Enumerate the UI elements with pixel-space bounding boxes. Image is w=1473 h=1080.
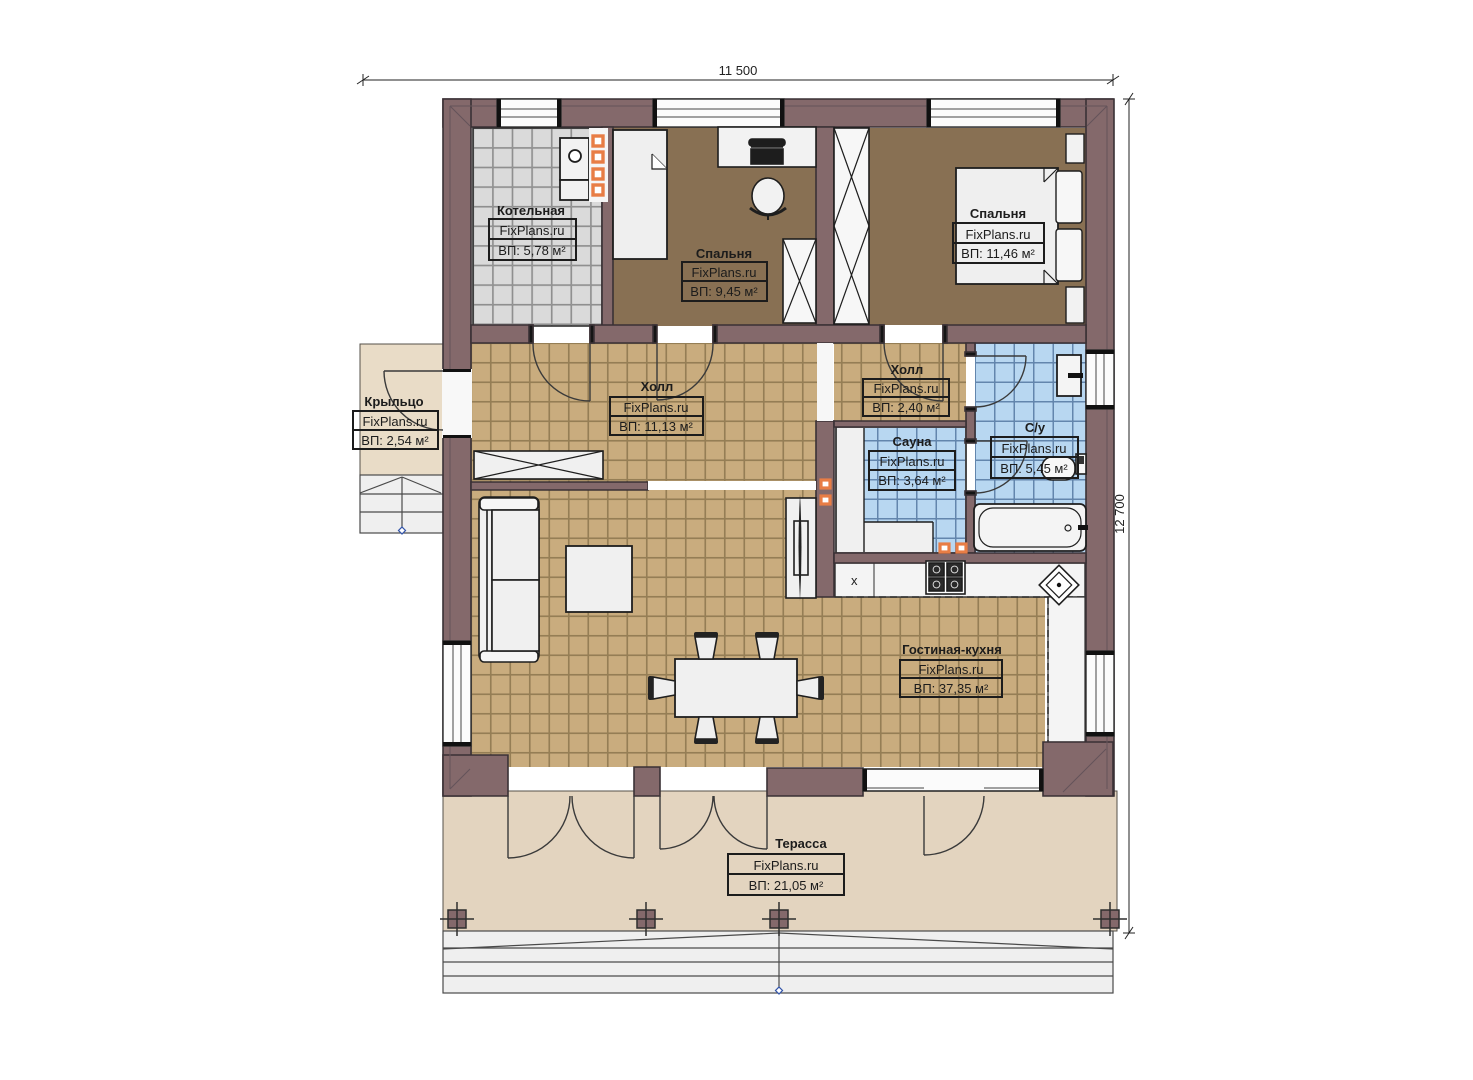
svg-text:FixPlans.ru: FixPlans.ru	[623, 400, 688, 415]
svg-text:ВП: 2,40 м²: ВП: 2,40 м²	[872, 400, 940, 415]
svg-text:ВП: 37,35 м²: ВП: 37,35 м²	[914, 681, 989, 696]
svg-text:12 700: 12 700	[1112, 494, 1127, 534]
svg-text:FixPlans.ru: FixPlans.ru	[753, 858, 818, 873]
svg-text:Гостиная-кухня: Гостиная-кухня	[902, 642, 1002, 657]
svg-text:x: x	[851, 573, 858, 588]
svg-text:FixPlans.ru: FixPlans.ru	[918, 662, 983, 677]
svg-text:Крыльцо: Крыльцо	[364, 394, 423, 409]
svg-text:Сауна: Сауна	[892, 434, 932, 449]
svg-text:ВП: 5,78 м²: ВП: 5,78 м²	[498, 243, 566, 258]
svg-text:FixPlans.ru: FixPlans.ru	[879, 454, 944, 469]
svg-text:Спальня: Спальня	[970, 206, 1026, 221]
svg-text:ВП: 9,45 м²: ВП: 9,45 м²	[690, 284, 758, 299]
svg-text:Котельная: Котельная	[497, 203, 565, 218]
svg-text:FixPlans.ru: FixPlans.ru	[362, 414, 427, 429]
svg-text:ВП: 11,13 м²: ВП: 11,13 м²	[619, 419, 693, 434]
svg-text:ВП: 2,54 м²: ВП: 2,54 м²	[361, 433, 429, 448]
svg-text:Спальня: Спальня	[696, 246, 752, 261]
svg-text:FixPlans.ru: FixPlans.ru	[965, 227, 1030, 242]
svg-text:Холл: Холл	[891, 362, 924, 377]
svg-text:ВП: 3,64 м²: ВП: 3,64 м²	[878, 473, 946, 488]
svg-text:Терасса: Терасса	[775, 836, 827, 851]
svg-text:ВП: 5,45 м²: ВП: 5,45 м²	[1000, 461, 1068, 476]
svg-text:ВП: 11,46 м²: ВП: 11,46 м²	[961, 246, 1035, 261]
svg-text:С/у: С/у	[1025, 420, 1046, 435]
svg-text:FixPlans.ru: FixPlans.ru	[499, 223, 564, 238]
svg-text:Холл: Холл	[641, 379, 674, 394]
svg-text:FixPlans.ru: FixPlans.ru	[873, 381, 938, 396]
svg-text:FixPlans.ru: FixPlans.ru	[691, 265, 756, 280]
svg-text:FixPlans.ru: FixPlans.ru	[1001, 441, 1066, 456]
svg-text:11 500: 11 500	[719, 63, 758, 78]
svg-text:ВП: 21,05 м²: ВП: 21,05 м²	[749, 878, 824, 893]
